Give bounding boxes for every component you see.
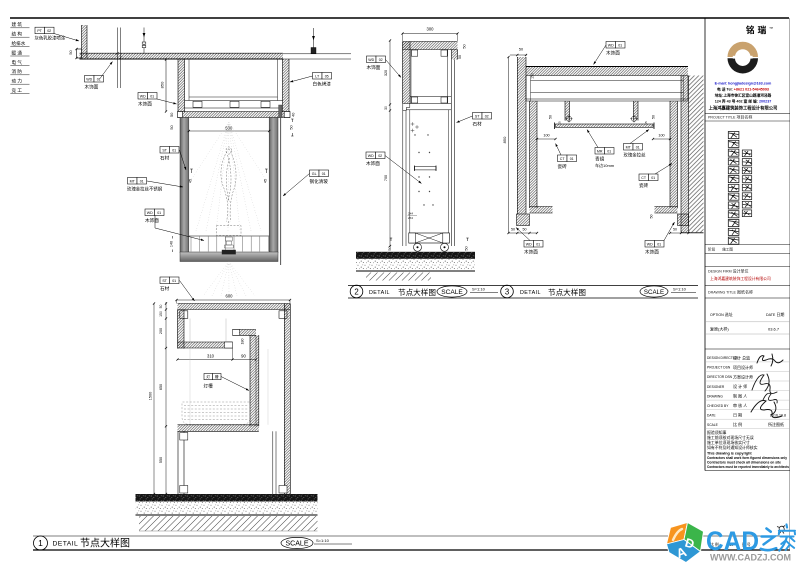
svg-text:50: 50 [289,125,293,129]
svg-text:SCALE: SCALE [644,289,664,296]
svg-text:电 话 Tel: +8621 021-54645093: 电 话 Tel: +8621 021-54645093 [717,87,769,92]
svg-text:01: 01 [536,242,540,246]
svg-text:木饰面: 木饰面 [85,84,99,91]
svg-text:03.6.7: 03.6.7 [768,327,780,332]
svg-text:310: 310 [207,353,215,358]
svg-text:Contractors must check all dim: Contractors must check all dimensions on… [707,461,781,465]
svg-text:玫瑰金拉丝不锈钢: 玫瑰金拉丝不锈钢 [127,186,163,193]
svg-text:S=1:10: S=1:10 [472,287,486,292]
svg-text:车边10mm: 车边10mm [595,162,615,168]
svg-text:WD: WD [368,58,374,62]
svg-text:ST: ST [475,114,480,118]
svg-text:S=1:10: S=1:10 [673,287,687,292]
svg-text:01: 01 [657,242,661,246]
svg-text:ST: ST [162,148,167,152]
svg-text:PROJECT DSN: PROJECT DSN [707,366,731,370]
svg-text:150: 150 [531,73,535,79]
svg-text:木饰面: 木饰面 [606,50,620,57]
svg-text:WD: WD [140,94,146,98]
svg-text:节点大样图: 节点大样图 [398,287,436,297]
svg-text:1500: 1500 [149,392,153,400]
svg-text:150: 150 [159,311,163,317]
svg-text:WD: WD [526,242,532,246]
svg-text:180: 180 [241,339,245,345]
svg-text:50: 50 [458,55,462,59]
svg-text:01: 01 [322,172,326,176]
svg-text:CT: CT [560,157,566,161]
svg-text:40: 40 [292,113,296,117]
svg-text:瓷砖: 瓷砖 [558,163,568,170]
svg-text:45: 45 [189,179,193,183]
svg-text:02: 02 [485,114,489,118]
svg-text:给排水: 给排水 [12,40,26,47]
svg-text:850: 850 [160,81,165,88]
svg-text:650: 650 [159,384,163,390]
svg-text:300: 300 [427,27,435,32]
svg-text:节点大样图: 节点大样图 [548,287,586,297]
svg-text:50: 50 [519,48,523,52]
svg-text:暖 通: 暖 通 [12,49,23,56]
svg-text:WD: WD [368,154,374,158]
svg-text:节点大样图: 节点大样图 [80,536,130,549]
svg-text:CT: CT [641,176,647,180]
svg-text:PT: PT [37,29,42,33]
svg-text:50: 50 [159,305,163,309]
svg-text:青镜: 青镜 [595,155,605,162]
svg-text:45: 45 [263,179,267,183]
svg-text:01: 01 [157,211,161,215]
svg-text:灯: 灯 [206,374,210,379]
svg-text:WD: WD [608,43,614,47]
svg-text:700: 700 [384,175,388,181]
svg-text:S=1:10: S=1:10 [316,538,330,543]
svg-text:WD: WD [86,77,92,81]
svg-text:审 核 人: 审 核 人 [733,402,747,408]
svg-text:50: 50 [549,115,553,119]
svg-text:50: 50 [170,125,174,129]
svg-text:320: 320 [384,70,388,76]
svg-text:所注图纸: 所注图纸 [768,421,784,427]
svg-text:3: 3 [505,288,509,297]
svg-text:上海鸿嘉建筑装饰工程设计有限公司: 上海鸿嘉建筑装饰工程设计有限公司 [710,276,771,281]
svg-text:CAD: CAD [706,526,759,556]
svg-text:01: 01 [172,279,176,283]
svg-text:01: 01 [636,145,640,149]
svg-text:CHECKED BY: CHECKED BY [707,404,729,408]
svg-text:SCALE: SCALE [441,289,463,296]
svg-text:50: 50 [463,44,467,48]
svg-text:15: 15 [644,121,648,125]
svg-text:竞 工: 竞 工 [12,87,23,94]
svg-text:动 力: 动 力 [12,78,23,85]
svg-text:600: 600 [226,294,234,299]
svg-text:木饰面: 木饰面 [145,217,159,224]
svg-text:2: 2 [354,288,358,297]
svg-text:比 例: 比 例 [733,421,742,427]
svg-text:灯槽: 灯槽 [204,383,214,390]
svg-text:850: 850 [502,136,507,143]
svg-text:石材: 石材 [473,120,483,127]
svg-text:木饰面: 木饰面 [138,101,152,108]
svg-text:项目设计师: 项目设计师 [733,364,753,370]
svg-text:Contractors must be reported i: Contractors must be reported immediately… [707,465,789,469]
svg-text:05: 05 [325,74,329,78]
svg-text:01: 01 [172,148,176,152]
svg-text:1: 1 [38,538,43,548]
svg-text:WWW.CADZJ.COM: WWW.CADZJ.COM [710,553,791,563]
svg-text:DRAWING: DRAWING [707,394,723,398]
svg-text:50: 50 [523,228,527,232]
svg-text:530: 530 [225,125,233,130]
svg-text:This drawing is copyright: This drawing is copyright [707,452,752,456]
svg-text:01: 01 [150,94,154,98]
svg-text:124 弄 43 号 402 室 邮 编: 200237: 124 弄 43 号 402 室 邮 编: 200237 [715,99,772,104]
svg-text:木饰面: 木饰面 [367,64,381,71]
svg-text:木饰面: 木饰面 [645,248,659,255]
svg-text:槽: 槽 [215,374,219,379]
svg-text:02: 02 [379,58,383,62]
svg-text:550: 550 [159,457,163,463]
svg-text:DETAIL: DETAIL [53,541,79,548]
svg-text:方案设计师: 方案设计师 [733,373,753,379]
svg-text:钢化清玻: 钢化清玻 [310,178,329,185]
svg-text:2X4: 2X4 [408,216,413,220]
svg-text:DIRECTOR DSN: DIRECTOR DSN [707,375,733,379]
svg-text:SCALE: SCALE [285,541,308,548]
svg-text:结 构: 结 构 [12,31,23,38]
svg-text:设 计 师: 设 计 师 [733,383,747,389]
svg-text:制 图 人: 制 图 人 [733,393,747,399]
svg-text:WD: WD [647,242,653,246]
svg-text:02: 02 [47,29,51,33]
svg-text:50: 50 [170,113,174,117]
svg-text:消 防: 消 防 [12,68,23,75]
svg-text:Contractors shall work form fi: Contractors shall work form figured dime… [707,456,787,460]
svg-text:100: 100 [658,134,664,138]
svg-text:MT: MT [130,179,136,183]
svg-text:50: 50 [650,215,654,219]
svg-text:如有不符及时通知设计师核实: 如有不符及时通知设计师核实 [707,445,758,450]
svg-text:01: 01 [651,176,655,180]
svg-text:石材: 石材 [160,285,170,292]
svg-text:50: 50 [652,115,656,119]
svg-text:白色烤漆: 白色烤漆 [313,81,332,88]
svg-text:WD: WD [147,211,153,215]
svg-text:90: 90 [241,353,246,358]
svg-text:ST: ST [162,279,167,283]
svg-text:MR: MR [597,149,603,153]
svg-text:木饰面: 木饰面 [524,248,538,255]
svg-text:E-mail: hongjiadesign@163.com: E-mail: hongjiadesign@163.com [715,82,772,86]
svg-text:50: 50 [69,50,73,54]
svg-text:50: 50 [388,246,392,250]
svg-text:电 气: 电 气 [12,59,23,65]
svg-text:DETAIL: DETAIL [369,290,390,296]
svg-text:140: 140 [170,241,174,247]
svg-text:玫瑰金拉丝: 玫瑰金拉丝 [624,151,647,158]
svg-text:石材: 石材 [160,155,170,162]
svg-text:50: 50 [511,228,515,232]
svg-text:木饰面: 木饰面 [366,160,380,167]
svg-text:DESIGNER: DESIGNER [707,385,725,389]
svg-text:GL: GL [312,172,317,176]
svg-text:50: 50 [673,228,677,232]
svg-text:01: 01 [618,43,622,47]
svg-text:地址:上海市徐汇区宜山路漕河泾路: 地址:上海市徐汇区宜山路漕河泾路 [715,93,772,98]
svg-text:01: 01 [607,149,611,153]
svg-text:DETAIL: DETAIL [520,290,541,296]
svg-text:02: 02 [378,154,382,158]
svg-text:01: 01 [140,179,144,183]
svg-text:DATE: DATE [707,413,716,417]
svg-text:30: 30 [384,106,388,110]
svg-text:2X4: 2X4 [408,212,413,216]
svg-text:100: 100 [543,134,549,138]
svg-text:MT: MT [626,145,632,149]
svg-text:50: 50 [465,246,469,250]
svg-text:200: 200 [159,328,163,334]
svg-text:上海鸿嘉建筑装饰工程设计有限公司: 上海鸿嘉建筑装饰工程设计有限公司 [709,105,778,112]
svg-text:01: 01 [570,157,574,161]
svg-text:日 期: 日 期 [733,412,742,418]
svg-text:设计 总监: 设计 总监 [733,354,750,360]
svg-text:复原(大样): 复原(大样) [710,326,729,332]
svg-text:SCALE: SCALE [707,423,719,427]
svg-text:瓷砖: 瓷砖 [639,182,649,189]
svg-text:15: 15 [558,121,562,125]
svg-text:建 筑: 建 筑 [12,21,23,28]
